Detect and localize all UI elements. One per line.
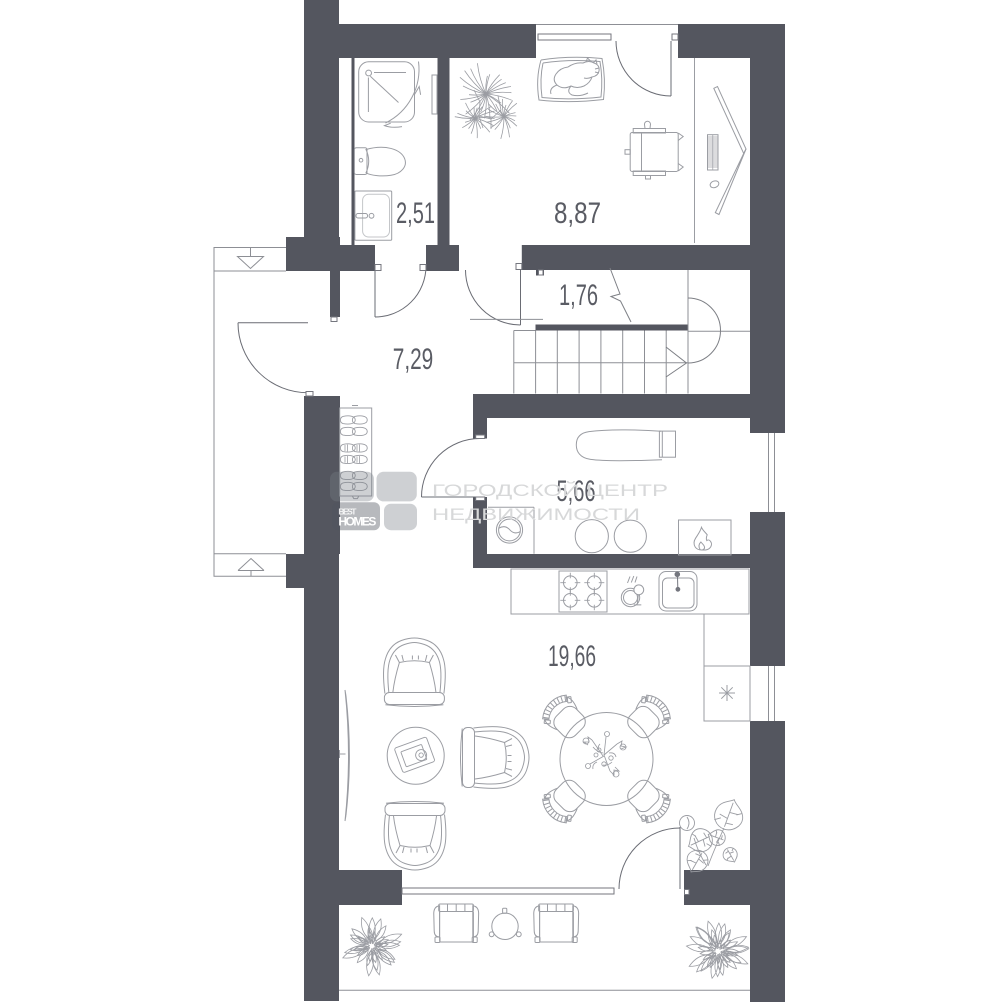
svg-text:8,87: 8,87 (554, 197, 601, 230)
svg-text:HOMES: HOMES (338, 515, 376, 529)
svg-text:19,66: 19,66 (548, 640, 596, 673)
svg-text:7,29: 7,29 (393, 343, 434, 376)
svg-text:2,51: 2,51 (396, 197, 435, 230)
svg-text:НЕДВИЖИМОСТИ: НЕДВИЖИМОСТИ (432, 506, 640, 524)
svg-text:ГОРОДСКОЙ ЦЕНТР: ГОРОДСКОЙ ЦЕНТР (432, 481, 668, 500)
svg-text:1,76: 1,76 (559, 279, 598, 312)
